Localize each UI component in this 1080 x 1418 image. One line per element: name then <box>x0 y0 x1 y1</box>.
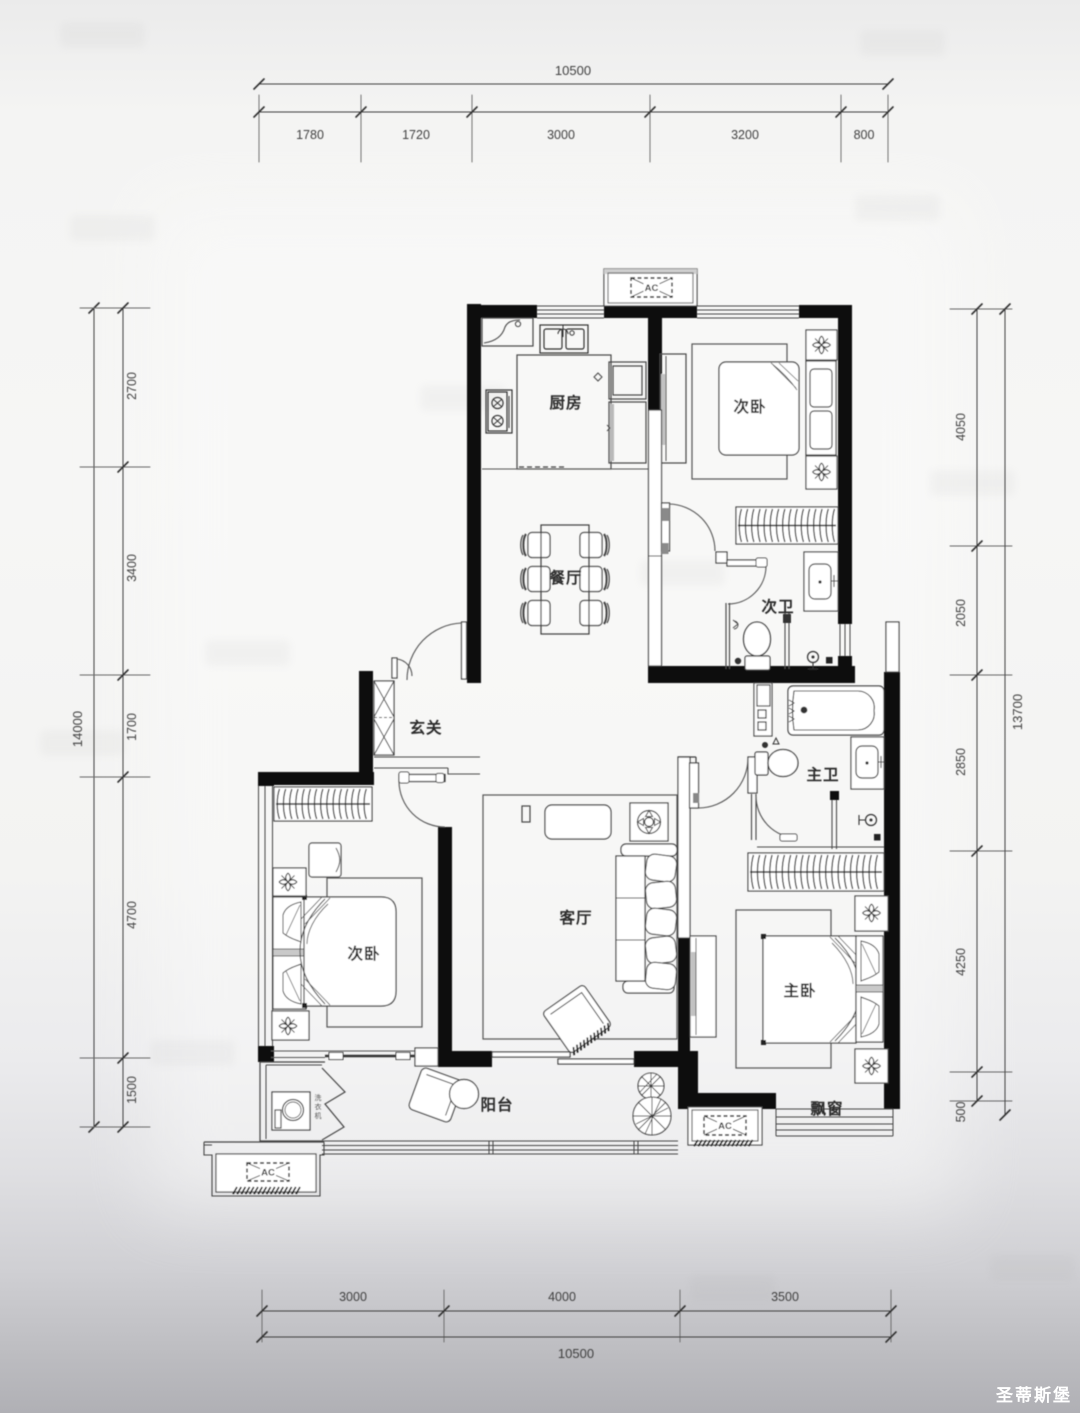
svg-text:次卫: 次卫 <box>761 597 794 616</box>
svg-text:1700: 1700 <box>125 713 139 741</box>
svg-text:1780: 1780 <box>296 128 324 142</box>
svg-text:次卧: 次卧 <box>347 944 380 963</box>
svg-text:3200: 3200 <box>731 128 759 142</box>
svg-text:3400: 3400 <box>125 554 139 582</box>
svg-text:3500: 3500 <box>771 1290 799 1304</box>
svg-text:500: 500 <box>954 1102 968 1123</box>
svg-text:4000: 4000 <box>548 1290 576 1304</box>
svg-text:3000: 3000 <box>547 128 575 142</box>
svg-text:洗: 洗 <box>315 1093 322 1102</box>
svg-text:主卫: 主卫 <box>806 765 839 784</box>
svg-text:圣蒂斯堡: 圣蒂斯堡 <box>996 1385 1072 1405</box>
svg-text:10500: 10500 <box>558 1346 594 1361</box>
svg-text:13700: 13700 <box>1010 694 1025 730</box>
svg-text:次卧: 次卧 <box>733 397 766 416</box>
svg-text:机: 机 <box>315 1111 322 1120</box>
svg-text:AC: AC <box>645 283 659 294</box>
svg-text:餐厅: 餐厅 <box>548 568 582 587</box>
svg-text:厨房: 厨房 <box>549 393 582 412</box>
svg-text:AC: AC <box>261 1168 275 1179</box>
svg-text:800: 800 <box>854 128 875 142</box>
svg-text:AC: AC <box>718 1121 732 1132</box>
svg-text:4700: 4700 <box>125 901 139 929</box>
svg-text:1500: 1500 <box>125 1076 139 1104</box>
svg-text:1720: 1720 <box>402 128 430 142</box>
svg-text:10500: 10500 <box>555 63 591 78</box>
svg-text:衣: 衣 <box>315 1102 322 1111</box>
svg-text:4250: 4250 <box>954 948 968 976</box>
svg-text:客厅: 客厅 <box>559 908 592 927</box>
svg-text:阳台: 阳台 <box>480 1095 513 1114</box>
svg-text:主卧: 主卧 <box>783 981 816 1000</box>
svg-text:14000: 14000 <box>70 711 85 747</box>
svg-text:2700: 2700 <box>125 372 139 400</box>
svg-text:3000: 3000 <box>339 1290 367 1304</box>
svg-text:飘窗: 飘窗 <box>810 1099 843 1118</box>
svg-text:玄关: 玄关 <box>409 718 442 737</box>
svg-text:4050: 4050 <box>954 413 968 441</box>
svg-text:2850: 2850 <box>954 748 968 776</box>
svg-text:2050: 2050 <box>954 599 968 627</box>
